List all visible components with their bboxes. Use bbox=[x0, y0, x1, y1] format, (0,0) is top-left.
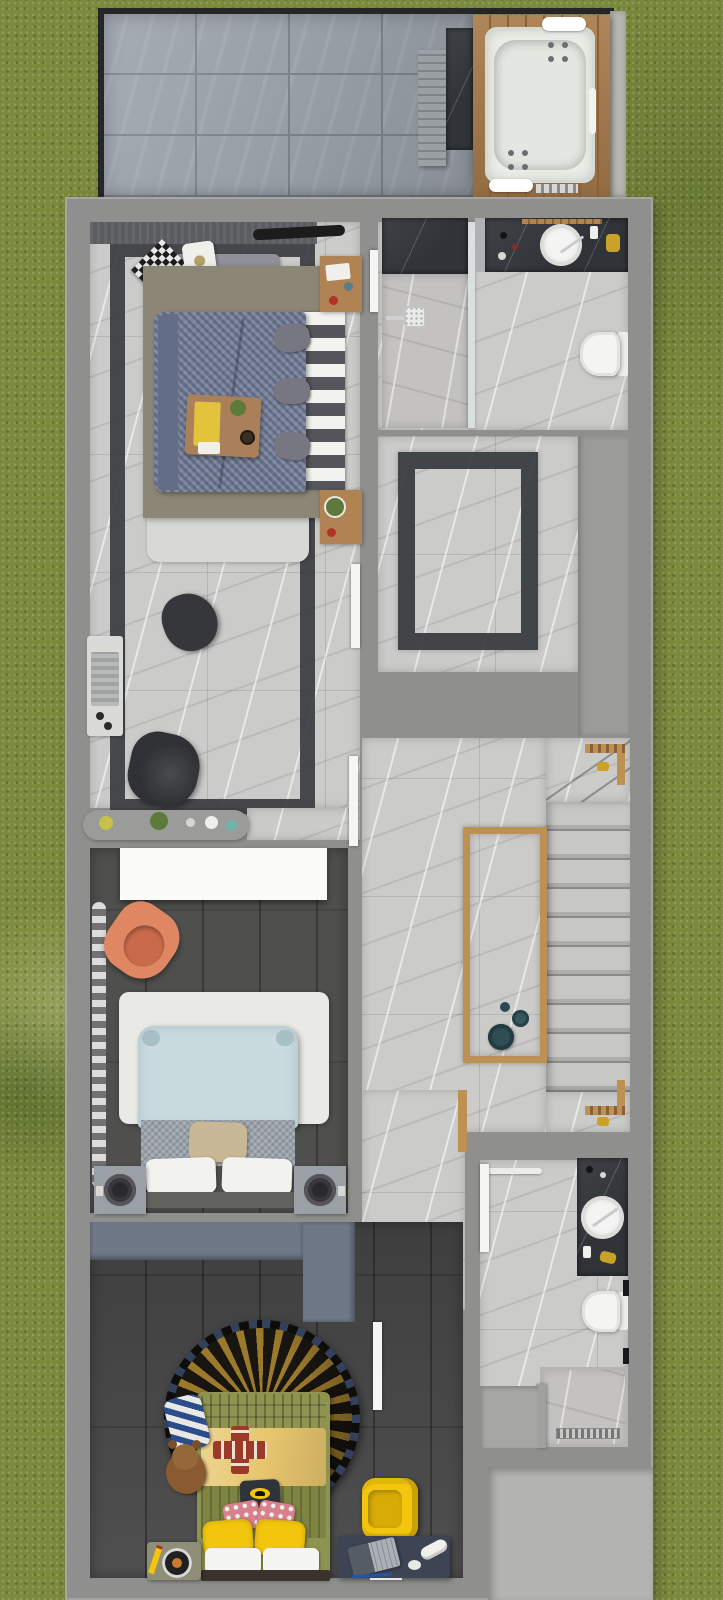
jacuzzi-jet bbox=[522, 164, 528, 170]
bedroom2-headboard bbox=[140, 1192, 296, 1208]
ensuite-vessel-sink bbox=[540, 224, 582, 266]
shower-drain-grate bbox=[556, 1428, 620, 1439]
decor-vase-small bbox=[500, 1002, 510, 1012]
shower-floor bbox=[382, 274, 468, 428]
jacuzzi-control-panel bbox=[536, 184, 578, 193]
decor-vase-large bbox=[488, 1024, 514, 1050]
jacuzzi-jet bbox=[548, 42, 554, 48]
handrail-post-top bbox=[585, 744, 625, 753]
towel-bar2 bbox=[486, 1168, 542, 1174]
bathroom2-toilet bbox=[582, 1291, 620, 1332]
decor-ball bbox=[186, 818, 195, 827]
decor-vase-medium bbox=[512, 1010, 529, 1027]
tray-card bbox=[198, 442, 220, 454]
handrail-post-top-v bbox=[617, 753, 625, 785]
nightstand-book bbox=[325, 263, 351, 281]
duvet-fold bbox=[158, 314, 178, 490]
kids-wardrobe-top bbox=[90, 1222, 303, 1260]
mouse bbox=[408, 1560, 421, 1570]
ensuite-toilet bbox=[580, 332, 620, 376]
record-player-label bbox=[172, 1558, 182, 1568]
tray-plant bbox=[230, 400, 246, 416]
bedroom2-door bbox=[349, 756, 358, 846]
bathroom2-door bbox=[480, 1164, 489, 1252]
nightstand-flower bbox=[327, 528, 336, 537]
yellow-armchair-seat bbox=[368, 1490, 402, 1528]
handrail-post-bottom-v bbox=[617, 1080, 625, 1106]
tray-coffee-cup bbox=[240, 430, 255, 445]
white-pillow-right bbox=[221, 1157, 292, 1195]
decor-vase bbox=[99, 816, 113, 830]
kids-wardrobe-side bbox=[303, 1222, 355, 1322]
duvet-corner-right bbox=[276, 1030, 294, 1046]
vanity2-decor bbox=[586, 1166, 593, 1173]
terrace-bench-slats bbox=[418, 50, 446, 166]
staircase-treads bbox=[546, 802, 630, 1092]
master-bedroom-door bbox=[351, 564, 360, 648]
teddy-ear bbox=[168, 1440, 177, 1449]
vanity-decor bbox=[500, 232, 507, 239]
vanity-bottle bbox=[590, 226, 598, 239]
console-tray bbox=[91, 652, 119, 706]
red-cross-pillow-h bbox=[213, 1441, 267, 1459]
speaker-lamp-left bbox=[104, 1174, 136, 1206]
kids-headboard-pillows bbox=[201, 1394, 326, 1428]
floor-strip bbox=[247, 808, 360, 840]
nightstand-flower bbox=[329, 296, 338, 305]
jacuzzi-jet bbox=[522, 150, 528, 156]
handrail-post-bottom bbox=[585, 1106, 625, 1115]
shower-marble-wall bbox=[382, 218, 468, 274]
nightstand-bottom bbox=[320, 490, 362, 544]
patio-slab bbox=[488, 1467, 653, 1600]
jacuzzi-headrest-bottom bbox=[489, 179, 533, 192]
vanity2-decor bbox=[600, 1172, 606, 1178]
slippers bbox=[104, 722, 112, 730]
nightstand-plant bbox=[326, 498, 344, 516]
speaker-lamp-right bbox=[304, 1174, 336, 1206]
shower-head bbox=[404, 306, 426, 328]
glass-hinge bbox=[623, 1280, 629, 1296]
jacuzzi-jet bbox=[562, 56, 568, 62]
duvet-corner-left bbox=[142, 1030, 160, 1046]
decor-plant bbox=[150, 812, 168, 830]
jacuzzi-headrest-top bbox=[542, 17, 586, 31]
vanity-decor bbox=[498, 252, 506, 260]
slippers bbox=[96, 712, 104, 720]
white-pillow-left bbox=[145, 1157, 216, 1195]
decor-vase bbox=[205, 816, 218, 829]
terrace-bench-marble-slab bbox=[446, 28, 473, 150]
vanity2-bottle bbox=[583, 1246, 591, 1258]
glass-hinge bbox=[623, 1348, 629, 1364]
bed-pillow bbox=[274, 378, 310, 404]
handrail-corridor bbox=[458, 1090, 467, 1152]
terrace-stone-border bbox=[610, 11, 626, 197]
nightstand-knob bbox=[338, 1186, 345, 1196]
tray-napkin bbox=[193, 402, 221, 447]
kids-room-door bbox=[373, 1322, 382, 1410]
floor-plan-render bbox=[0, 0, 723, 1600]
jacuzzi-grab-handle bbox=[589, 88, 596, 134]
stair-lamp-top bbox=[597, 762, 609, 771]
jacuzzi-jet bbox=[508, 164, 514, 170]
jacuzzi-jet bbox=[508, 150, 514, 156]
shower-platform bbox=[480, 1386, 538, 1448]
service-shaft-panel bbox=[578, 436, 628, 736]
vanity-mirror-strip bbox=[475, 218, 485, 272]
batman-logo-bat bbox=[255, 1491, 265, 1496]
dressing-floor-inlay bbox=[398, 452, 538, 650]
stair-lamp-bottom bbox=[597, 1117, 609, 1126]
nightstand-knob bbox=[96, 1186, 103, 1196]
jacuzzi-jet bbox=[562, 42, 568, 48]
gold-soap-dispenser bbox=[606, 234, 620, 252]
decor-teal-ball bbox=[226, 820, 237, 831]
vanity-decor bbox=[512, 244, 518, 250]
nightstand-cup bbox=[344, 282, 353, 291]
bedroom2-wardrobe bbox=[120, 848, 327, 900]
pen-white bbox=[370, 1578, 402, 1580]
jacuzzi-jet bbox=[548, 56, 554, 62]
shower-glass-partition bbox=[468, 222, 475, 428]
teddy-ear bbox=[192, 1440, 201, 1449]
bedroom2-duvet bbox=[138, 1026, 298, 1128]
kids-footboard bbox=[201, 1570, 330, 1581]
